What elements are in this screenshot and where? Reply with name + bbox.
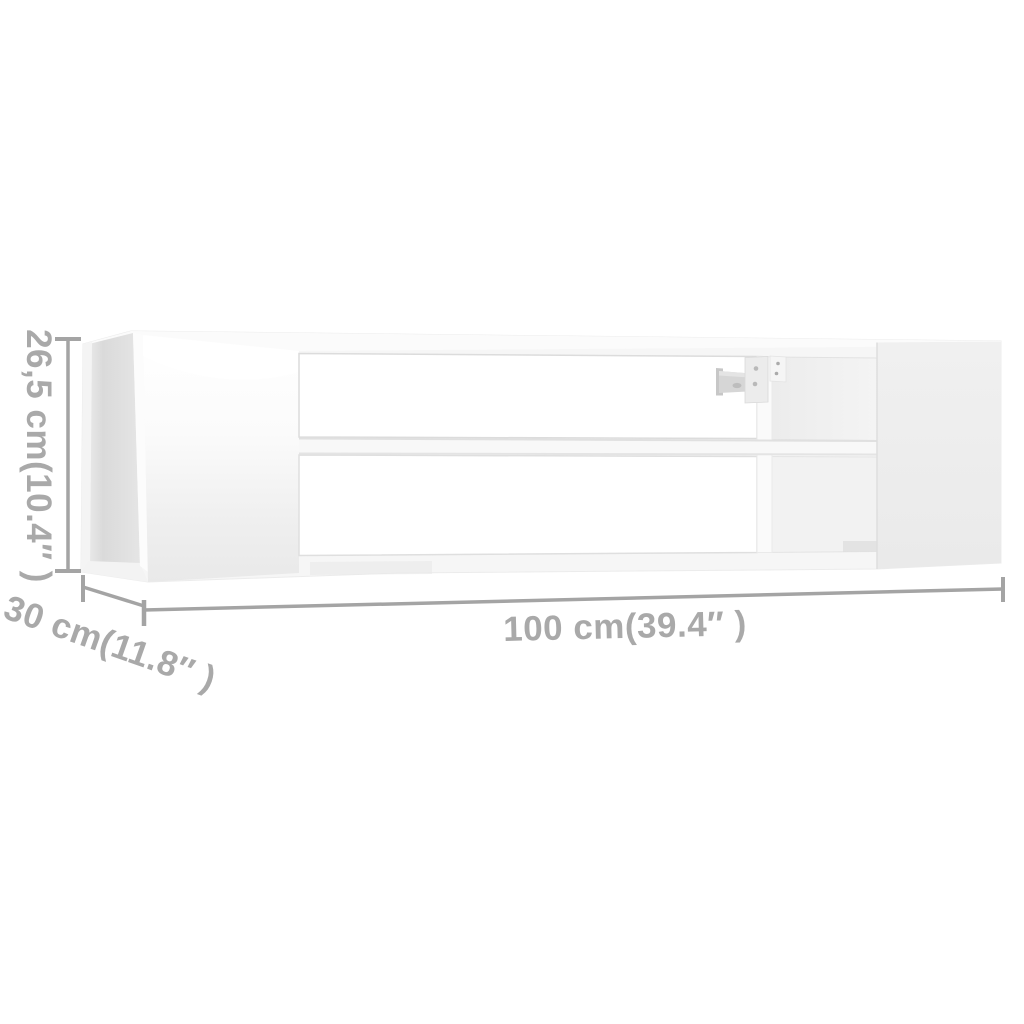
lower-right-compartment	[757, 457, 877, 553]
compartment-shadow	[843, 541, 877, 552]
cabinet-body	[81, 331, 1001, 582]
hanging-tv-shelf-render	[0, 0, 1024, 1024]
lower-middle-opening	[299, 455, 757, 556]
upper-right-compartment	[772, 357, 877, 441]
width-dimension-label: 100 cm(39.4″ )	[503, 604, 748, 650]
width-dimension-line	[144, 577, 1003, 610]
height-dimension-line	[55, 339, 81, 571]
right-front-panel	[877, 342, 1001, 570]
shelf-bottom-edge	[299, 454, 877, 455]
product-dimension-image: 26,5 cm(10.4″ ) 30 cm(11.8″ ) 100 cm(39.…	[0, 0, 1024, 1024]
upper-middle-opening	[299, 354, 757, 439]
bottom-rail-shadow	[310, 561, 432, 575]
cabinet-left-bottom-face	[81, 561, 148, 582]
height-dimension-label: 26,5 cm(10.4″ )	[18, 329, 58, 583]
